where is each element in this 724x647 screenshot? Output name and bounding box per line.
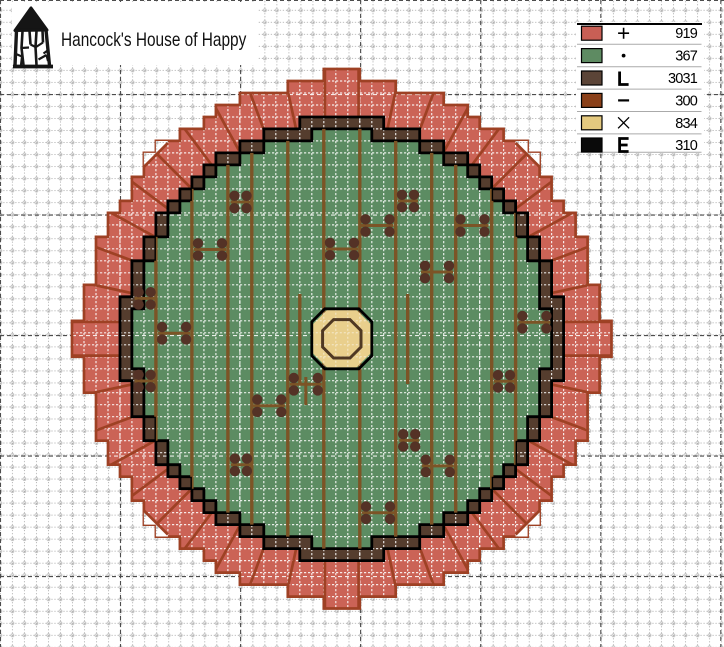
svg-text:367: 367 xyxy=(675,49,698,65)
svg-text:310: 310 xyxy=(675,138,698,154)
svg-text:3031: 3031 xyxy=(668,71,698,87)
svg-text:919: 919 xyxy=(675,26,698,42)
svg-text:834: 834 xyxy=(675,116,698,132)
svg-text:300: 300 xyxy=(675,93,698,109)
